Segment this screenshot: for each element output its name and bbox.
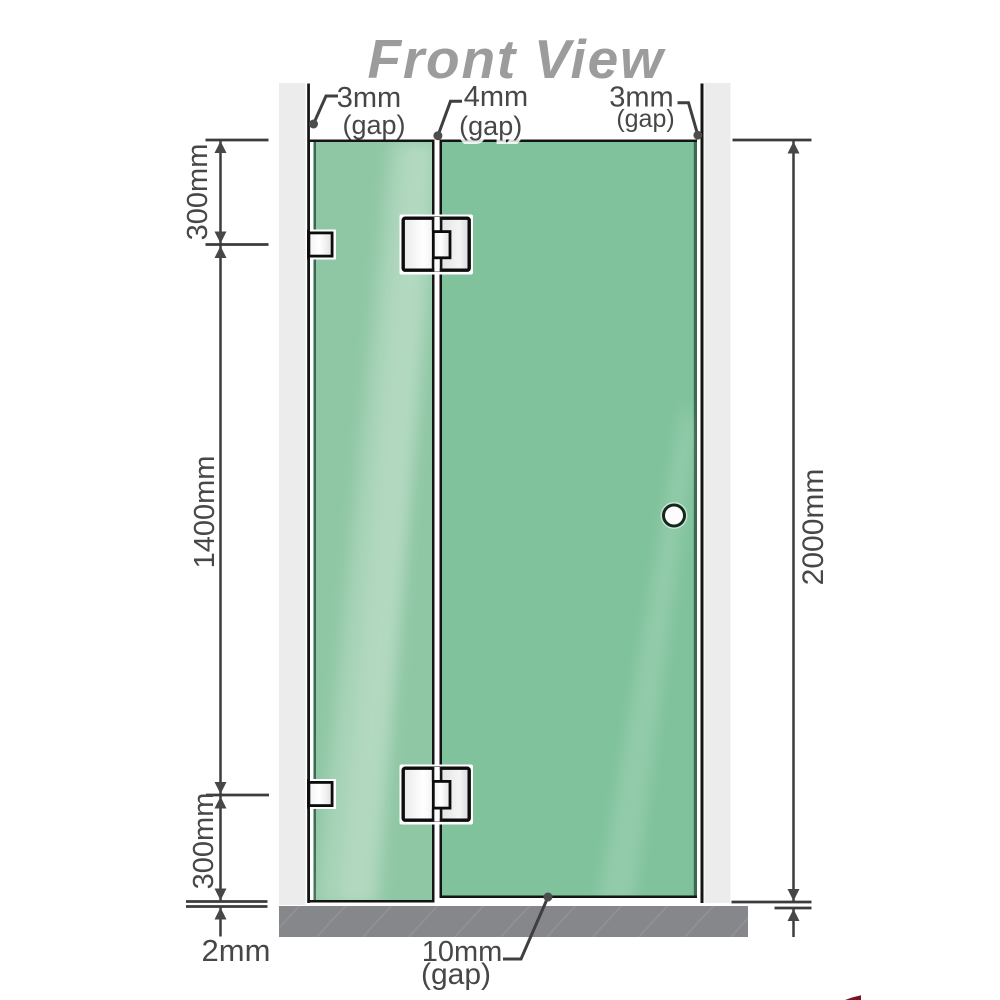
svg-text:2mm: 2mm xyxy=(202,933,271,968)
svg-text:(gap): (gap) xyxy=(459,111,522,141)
svg-text:(gap): (gap) xyxy=(616,105,674,133)
svg-text:(gap): (gap) xyxy=(342,110,405,140)
svg-text:1400mm: 1400mm xyxy=(189,456,221,569)
svg-text:(gap): (gap) xyxy=(421,958,491,991)
svg-text:300mm: 300mm xyxy=(188,793,220,890)
svg-text:300mm: 300mm xyxy=(182,144,214,241)
svg-text:4mm: 4mm xyxy=(464,81,528,113)
svg-text:2000mm: 2000mm xyxy=(797,469,830,586)
